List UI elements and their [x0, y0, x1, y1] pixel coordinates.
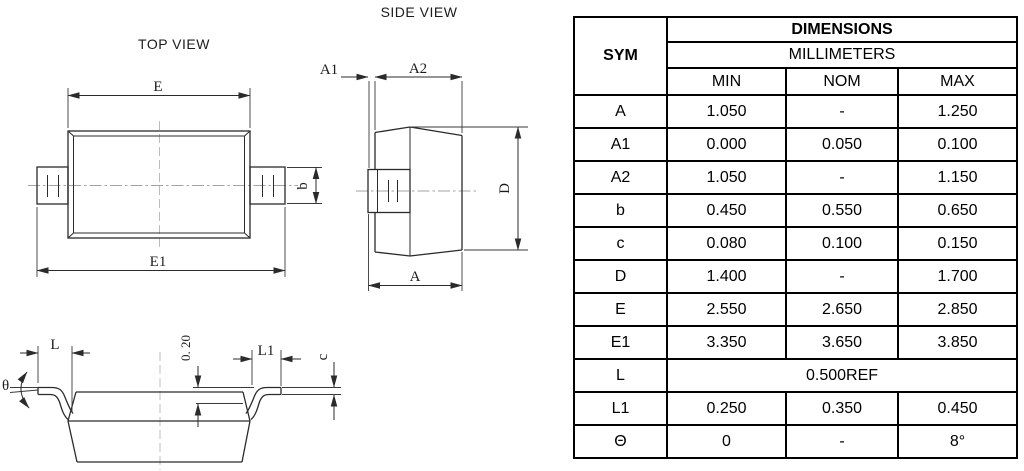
col-header-nom: NOM — [786, 68, 898, 95]
table-cell: 0.250 — [667, 392, 786, 425]
table-cell: - — [786, 425, 898, 458]
col-header-max: MAX — [898, 68, 1017, 95]
side-view: SIDE VIEW A1 A2 — [320, 4, 528, 291]
table-cell: - — [786, 260, 898, 293]
table-cell: - — [786, 161, 898, 194]
table-row: A 1.050 - 1.250 — [574, 95, 1017, 128]
table-cell: 0.100 — [898, 128, 1017, 161]
dim-E: E — [68, 79, 250, 128]
dim-L: L — [20, 337, 90, 412]
table-cell: 0.500REF — [667, 359, 1017, 392]
table-cell: 3.850 — [898, 326, 1017, 359]
table-row: D 1.400 - 1.700 — [574, 260, 1017, 293]
table-cell: b — [574, 194, 667, 227]
dim-D: D — [412, 127, 528, 250]
table-cell: A2 — [574, 161, 667, 194]
table-row: c 0.080 0.100 0.150 — [574, 227, 1017, 260]
table-row: Θ 0 - 8° — [574, 425, 1017, 458]
table-cell: 0.650 — [898, 194, 1017, 227]
dim-label-A2: A2 — [409, 61, 427, 77]
dimensions-table: SYM DIMENSIONS MILLIMETERS MIN NOM MAX A… — [573, 16, 1018, 459]
table-cell: L — [574, 359, 667, 392]
front-view-right-lead — [246, 388, 281, 420]
top-view: TOP VIEW E — [28, 36, 322, 277]
table-cell: 0.350 — [786, 392, 898, 425]
table-row: A2 1.050 - 1.150 — [574, 161, 1017, 194]
table-cell: 2.850 — [898, 293, 1017, 326]
dim-label-L: L — [50, 337, 59, 353]
drawings-canvas: TOP VIEW E — [0, 0, 560, 471]
dim-label-D: D — [497, 183, 513, 194]
dim-standoff-020: 0. 20 — [178, 335, 254, 427]
table-cell: 1.050 — [667, 161, 786, 194]
sym-header: SYM — [574, 17, 667, 95]
dim-label-c: c — [315, 353, 331, 360]
table-cell: 8° — [898, 425, 1017, 458]
table-cell: 0.450 — [667, 194, 786, 227]
table-cell: 0.150 — [898, 227, 1017, 260]
table-cell: 3.350 — [667, 326, 786, 359]
table-row: L1 0.250 0.350 0.450 — [574, 392, 1017, 425]
table-cell: A1 — [574, 128, 667, 161]
table-cell: c — [574, 227, 667, 260]
table-cell: - — [786, 95, 898, 128]
table-row: A1 0.000 0.050 0.100 — [574, 128, 1017, 161]
table-title: DIMENSIONS — [667, 17, 1017, 42]
table-cell: E — [574, 293, 667, 326]
table-cell: Θ — [574, 425, 667, 458]
table-cell: 1.400 — [667, 260, 786, 293]
front-view-left-lead — [38, 388, 73, 420]
table-cell: 2.650 — [786, 293, 898, 326]
dim-A1: A1 — [320, 62, 375, 168]
table-row: E1 3.350 3.650 3.850 — [574, 326, 1017, 359]
dim-label-standoff: 0. 20 — [178, 335, 193, 361]
dim-label-E1: E1 — [150, 254, 167, 270]
table-cell: D — [574, 260, 667, 293]
dim-label-E: E — [153, 79, 162, 95]
table-cell: 0 — [667, 425, 786, 458]
table-cell: L1 — [574, 392, 667, 425]
top-view-title: TOP VIEW — [138, 36, 210, 52]
table-cell: 1.150 — [898, 161, 1017, 194]
dim-c: c — [282, 353, 341, 420]
side-view-title: SIDE VIEW — [381, 4, 458, 20]
front-view-body — [68, 392, 250, 462]
dim-theta: θ — [2, 372, 38, 408]
front-view: θ L 0. 20 L1 — [2, 335, 341, 470]
table-cell: 0.080 — [667, 227, 786, 260]
table-row: b 0.450 0.550 0.650 — [574, 194, 1017, 227]
table-cell: 0.100 — [786, 227, 898, 260]
table-cell: A — [574, 95, 667, 128]
table-cell: 3.650 — [786, 326, 898, 359]
dim-label-A: A — [410, 269, 421, 285]
dim-label-b: b — [295, 182, 311, 190]
table-cell: 0.550 — [786, 194, 898, 227]
dim-label-theta: θ — [2, 378, 9, 394]
col-header-min: MIN — [667, 68, 786, 95]
dim-A2: A2 — [375, 61, 462, 133]
dim-label-L1: L1 — [258, 343, 275, 359]
table-cell: 0.050 — [786, 128, 898, 161]
table-row: L 0.500REF — [574, 359, 1017, 392]
table-row: E 2.550 2.650 2.850 — [574, 293, 1017, 326]
top-view-body — [68, 131, 250, 238]
table-cell: 2.550 — [667, 293, 786, 326]
units-header: MILLIMETERS — [667, 42, 1017, 68]
table-cell: 0.000 — [667, 128, 786, 161]
table-cell: 1.050 — [667, 95, 786, 128]
table-cell: 1.250 — [898, 95, 1017, 128]
table-cell: 0.450 — [898, 392, 1017, 425]
package-outline-drawing: TOP VIEW E — [0, 0, 1024, 471]
dim-E1: E1 — [37, 207, 285, 277]
dim-L1: L1 — [233, 343, 301, 386]
dim-label-A1: A1 — [320, 62, 338, 78]
table-cell: 1.700 — [898, 260, 1017, 293]
table-cell: E1 — [574, 326, 667, 359]
dim-b: b — [287, 168, 322, 204]
